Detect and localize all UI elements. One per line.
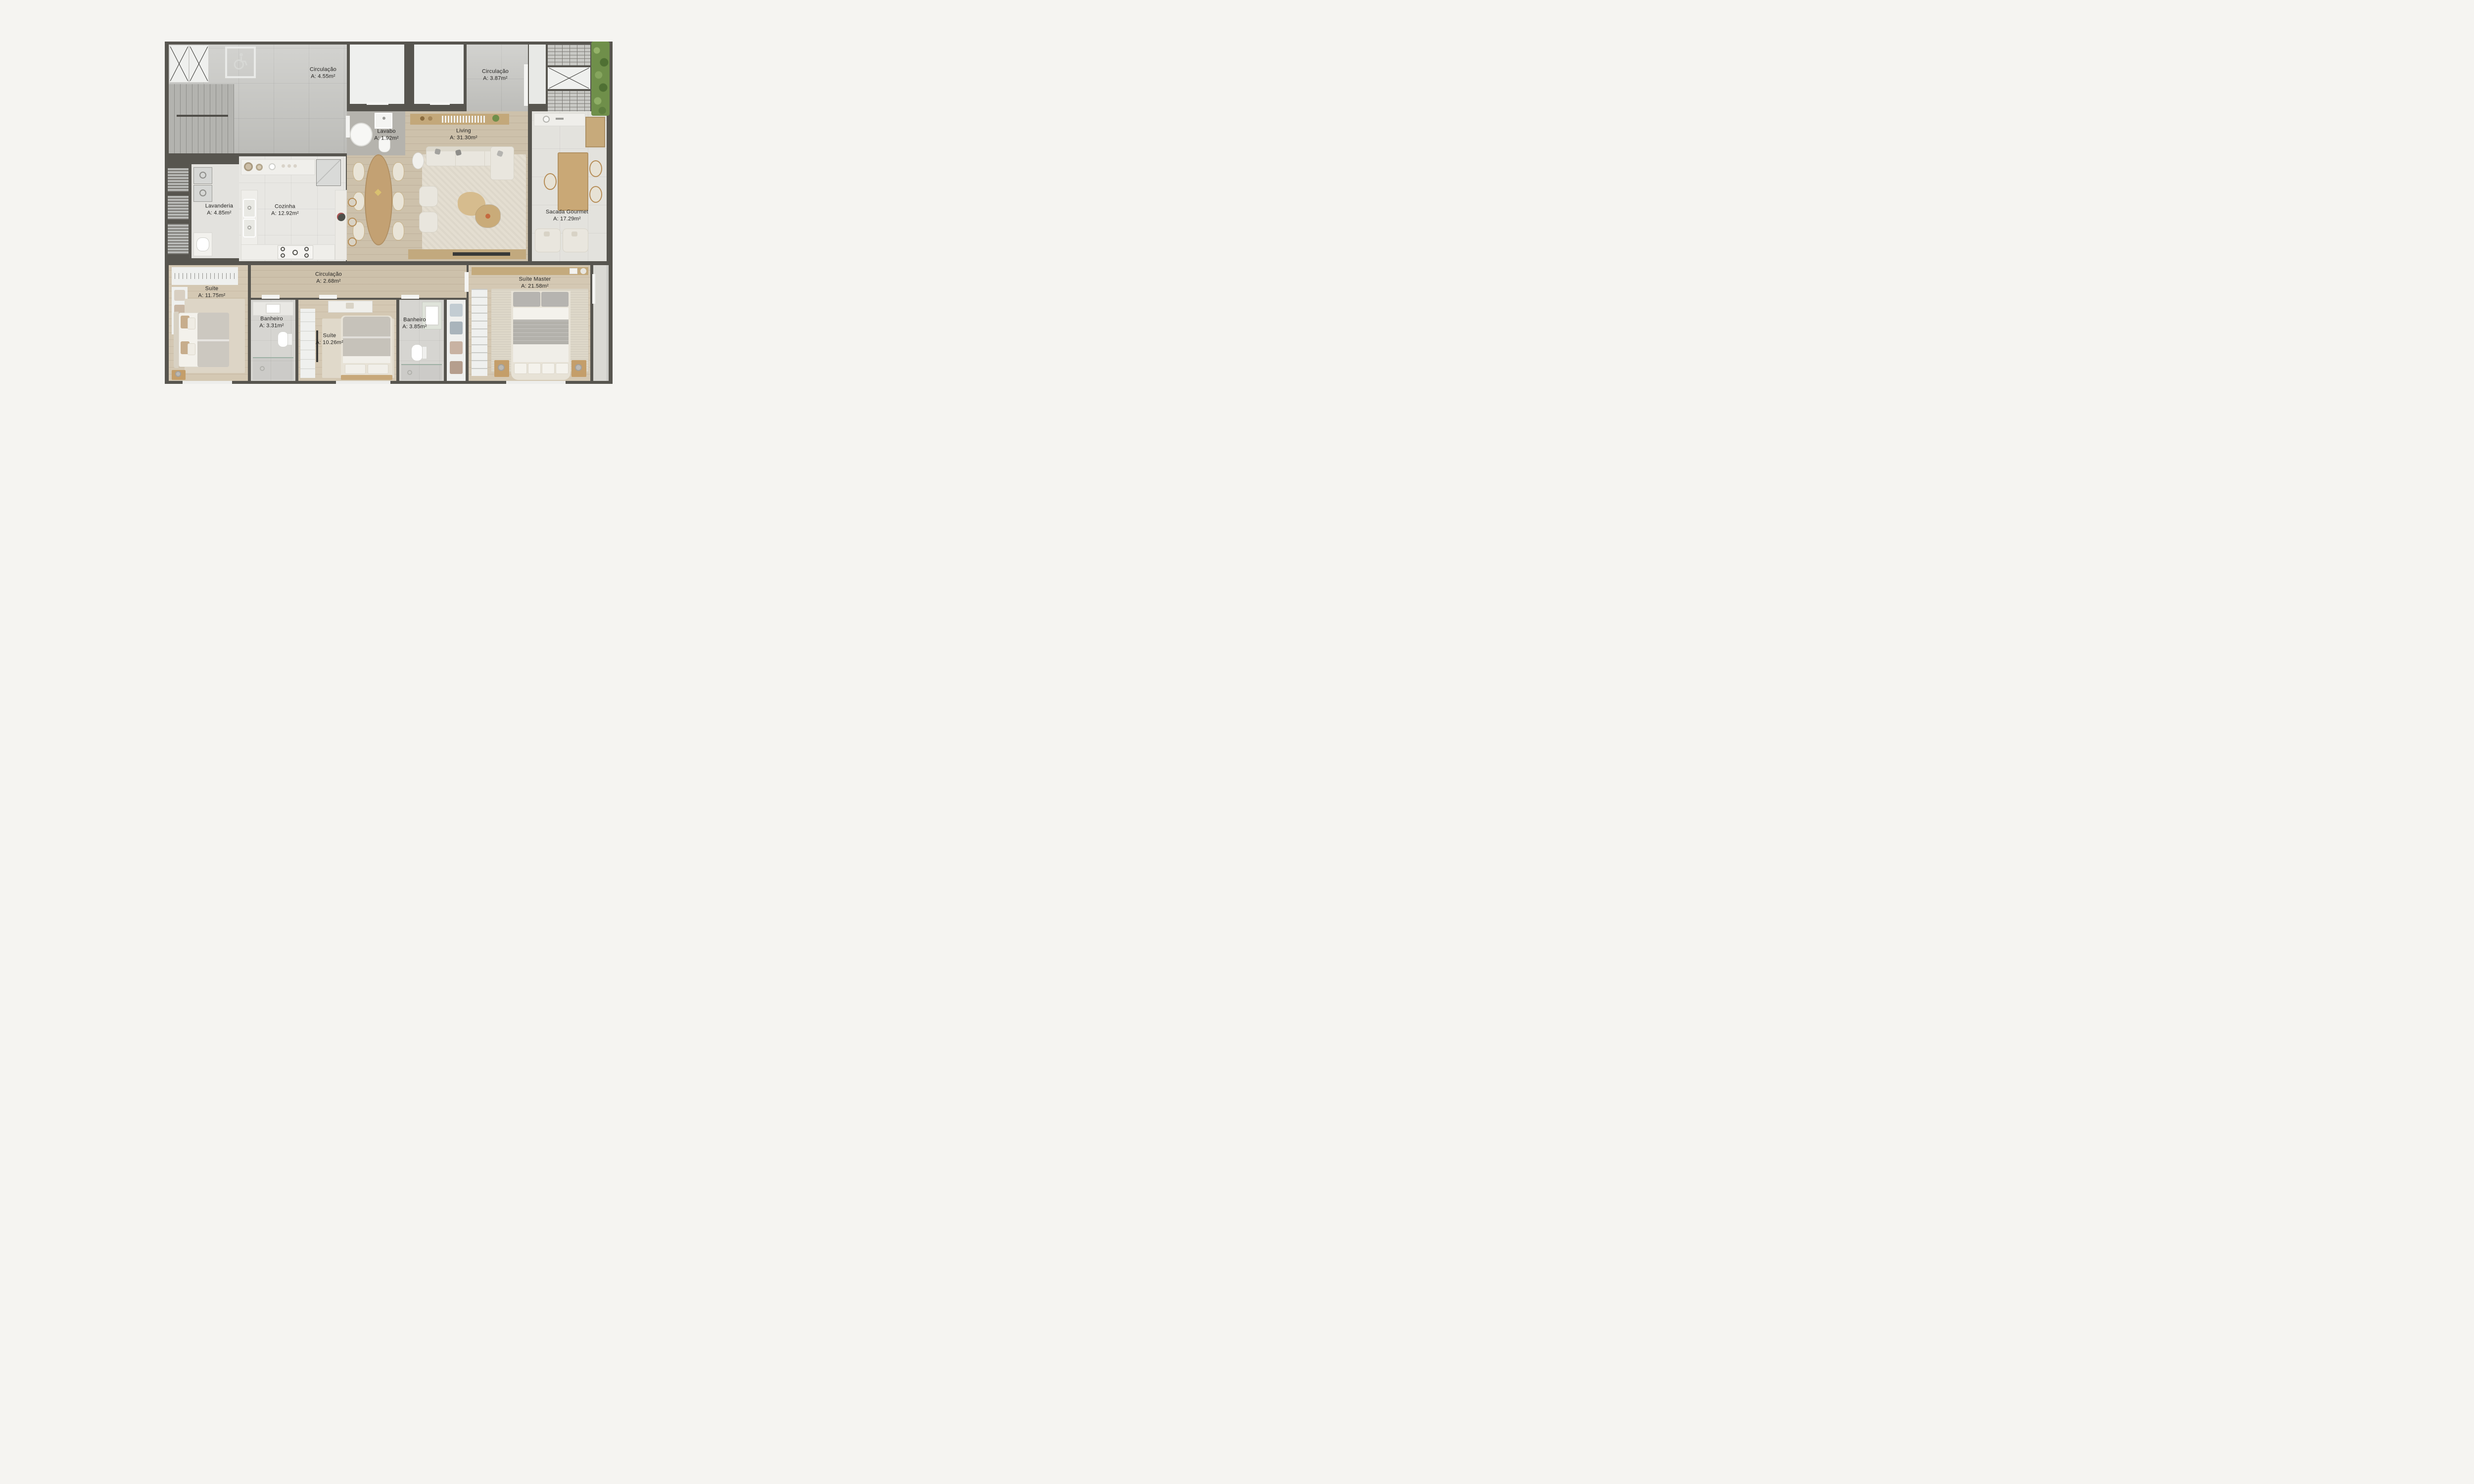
room-name: Lavabo <box>374 128 399 135</box>
side-table <box>412 152 424 169</box>
room-name: Suíte <box>316 332 343 339</box>
window-suite2 <box>336 381 390 384</box>
cup <box>282 164 285 168</box>
suite2-sheet <box>343 356 390 363</box>
dining-table <box>365 154 392 245</box>
room-name: Sacada Gourmet <box>546 209 588 216</box>
master-blanket <box>513 320 569 344</box>
island-stool <box>348 198 357 207</box>
suite2-duvet <box>343 317 390 356</box>
wheelchair-icon <box>231 52 250 71</box>
bed-pillow <box>528 363 541 374</box>
island-stool <box>348 237 357 246</box>
sacada-counter <box>534 113 585 126</box>
room-area: A: 3.87m² <box>482 75 509 82</box>
books-row <box>442 116 486 123</box>
folded-clothes <box>174 290 185 301</box>
corridor-floor <box>251 265 467 298</box>
fruit-bowl <box>337 213 345 221</box>
burner <box>304 247 309 251</box>
room-name: Suíte <box>198 285 226 292</box>
console-vase-1 <box>420 116 425 121</box>
x-cross-icon <box>548 67 590 89</box>
x-cross-icon <box>190 46 208 82</box>
dining-chair <box>392 162 404 181</box>
service-shaft-louver-3 <box>168 224 189 254</box>
sacada-faucet <box>556 118 564 120</box>
console-plant <box>492 115 499 122</box>
corridor-door-master <box>465 272 469 292</box>
room-name: Banheiro <box>402 317 427 324</box>
lavabo-sink <box>375 113 392 129</box>
console-candle <box>570 268 577 274</box>
kitchen-island <box>335 190 347 260</box>
island-stool <box>348 218 357 227</box>
service-room-2-door <box>430 102 450 105</box>
room-label-circulacao-1: CirculaçãoA: 4.55m² <box>310 66 336 81</box>
lounge-pillow-2 <box>571 232 577 236</box>
suite1-duvet <box>197 313 229 367</box>
elevator-shaft-1 <box>170 46 189 82</box>
pot-1 <box>244 162 253 171</box>
room-label-lavabo: LavaboA: 1.92m² <box>374 128 399 142</box>
ventilation-shaft-brick-2 <box>548 91 590 114</box>
wishbone-chair <box>589 160 602 177</box>
suite2-wardrobe <box>300 309 315 378</box>
bed-pillow <box>188 343 195 355</box>
stairwell <box>169 84 234 153</box>
banheiro2-sink <box>425 306 439 325</box>
cup <box>287 164 291 168</box>
room-area: A: 17.29m² <box>546 216 588 223</box>
wardrobe-hangers <box>175 273 235 279</box>
armchair-1 <box>419 186 438 207</box>
wishbone-chair <box>589 186 602 203</box>
sacada-cabinet <box>585 117 605 147</box>
x-cross-icon <box>170 46 189 82</box>
room-name: Circulação <box>310 66 336 73</box>
oven-appliance <box>316 159 341 186</box>
bed-pillow <box>368 364 388 374</box>
room-label-sacada: Sacada GourmetA: 17.29m² <box>546 209 588 223</box>
room-label-banheiro-2: BanheiroA: 3.85m² <box>402 317 427 331</box>
room-area: A: 12.92m² <box>271 210 299 217</box>
room-label-suite-2: SuíteA: 10.26m² <box>316 332 343 347</box>
room-area: A: 3.31m² <box>259 323 284 329</box>
room-label-cozinha: CozinhaA: 12.92m² <box>271 203 299 218</box>
service-shaft-louver-1 <box>168 168 189 192</box>
room-name: Circulação <box>482 68 509 75</box>
sacada-sink <box>543 116 550 123</box>
shower-head <box>260 366 265 371</box>
room-area: A: 10.26m² <box>316 339 343 346</box>
room-area: A: 4.85m² <box>205 210 233 217</box>
master-sheet <box>513 308 569 320</box>
banheiro1-sink <box>266 304 281 314</box>
banheiro1-cistern <box>287 333 292 345</box>
folded-clothes <box>450 304 463 317</box>
folded-clothes <box>450 322 463 334</box>
corridor-door-suite-2 <box>319 295 337 299</box>
entry-door <box>346 116 350 138</box>
shaft-x-box <box>548 67 590 89</box>
lavabo-basin <box>350 123 373 146</box>
service-room-2 <box>414 45 464 104</box>
corridor-door-banheiro-2 <box>401 295 419 299</box>
sink-drain-2 <box>247 226 251 230</box>
corridor-door-banheiro-1 <box>262 295 280 299</box>
sink-drain-1 <box>247 206 251 210</box>
window-suite1 <box>183 381 232 384</box>
dining-chair <box>353 162 365 181</box>
dining-chair <box>392 192 404 211</box>
suite1-headboard <box>174 312 179 368</box>
ventilation-shaft-brick-1 <box>548 45 590 65</box>
banheiro1-toilet <box>278 331 288 347</box>
accessible-area-sign <box>225 46 256 78</box>
room-area: A: 11.75m² <box>198 292 226 299</box>
sacada-dining-table <box>558 152 588 211</box>
plate-stack <box>269 163 276 170</box>
console-vase-2 <box>428 116 432 121</box>
folded-clothes <box>450 361 463 374</box>
stair-handrail <box>177 115 228 117</box>
room-label-living: LivingA: 31.30m² <box>450 128 477 142</box>
room-area: A: 3.85m² <box>402 324 427 330</box>
room-label-suite-master: Suíte MasterA: 21.58m² <box>519 276 551 290</box>
service-room-1-door <box>367 102 388 105</box>
shower-head <box>407 370 412 375</box>
pot-2 <box>256 164 263 171</box>
bed-pillow <box>188 318 195 329</box>
room-label-suite-1: SuíteA: 11.75m² <box>198 285 226 300</box>
wishbone-chair <box>544 173 557 190</box>
bed-pillow <box>542 363 555 374</box>
banheiro1-shower <box>253 358 293 380</box>
bed-pillow <box>345 364 366 374</box>
burner <box>304 253 309 258</box>
service-room-1 <box>350 45 404 104</box>
burner <box>281 253 285 258</box>
room-name: Banheiro <box>259 316 284 323</box>
room-label-lavanderia: LavanderiaA: 4.85m² <box>205 203 233 217</box>
room-area: A: 21.58m² <box>519 283 551 290</box>
hedge-plants <box>591 42 610 116</box>
room-label-banheiro-1: BanheiroA: 3.31m² <box>259 316 284 330</box>
room-area: A: 2.68m² <box>315 278 342 285</box>
room-name: Suíte Master <box>519 276 551 283</box>
master-lamp-right <box>575 364 582 371</box>
circulacao-2-door <box>524 64 528 106</box>
burner <box>281 247 285 251</box>
tv-screen <box>453 252 510 256</box>
window-master <box>506 381 566 384</box>
burner <box>292 250 298 255</box>
room-name: Living <box>450 128 477 135</box>
bed-pillow <box>556 363 569 374</box>
suite1-lamp <box>175 371 181 377</box>
cup <box>293 164 297 168</box>
room-name: Circulação <box>315 271 342 278</box>
dresser-decor <box>346 303 354 309</box>
room-area: A: 1.92m² <box>374 135 399 142</box>
headboard-cushion <box>513 292 540 307</box>
master-duvet <box>513 344 569 362</box>
master-lamp-left <box>498 364 505 371</box>
armchair-2 <box>419 212 438 232</box>
room-area: A: 4.55m² <box>310 73 336 80</box>
bed-pillow <box>514 363 527 374</box>
elevator-lobby-strip <box>529 45 546 104</box>
service-shaft-louver-2 <box>168 196 189 220</box>
room-name: Lavanderia <box>205 203 233 210</box>
lavabo-faucet <box>382 117 385 120</box>
headboard-cushion <box>541 292 569 307</box>
coffee-table-decor <box>485 214 490 219</box>
room-label-circulacao-3: CirculaçãoA: 2.68m² <box>315 271 342 285</box>
floor-plan: CirculaçãoA: 4.55m² CirculaçãoA: 3.87m² … <box>165 42 613 384</box>
room-label-circulacao-2: CirculaçãoA: 3.87m² <box>482 68 509 83</box>
elevator-shaft-2 <box>190 46 208 82</box>
room-area: A: 31.30m² <box>450 135 477 141</box>
laundry-basin <box>196 237 209 251</box>
lounge-pillow-1 <box>544 232 550 236</box>
master-wardrobe <box>472 289 487 376</box>
dryer-door <box>199 189 206 196</box>
banheiro2-toilet <box>411 344 423 361</box>
folded-clothes <box>450 341 463 354</box>
balcony-door <box>592 274 595 304</box>
console-flowers <box>580 268 586 274</box>
washer-door <box>199 172 206 179</box>
dining-chair <box>392 222 404 240</box>
room-name: Cozinha <box>271 203 299 210</box>
banheiro2-cistern <box>422 346 427 359</box>
balcony-rail <box>607 265 608 381</box>
suite2-headboard <box>341 375 392 380</box>
